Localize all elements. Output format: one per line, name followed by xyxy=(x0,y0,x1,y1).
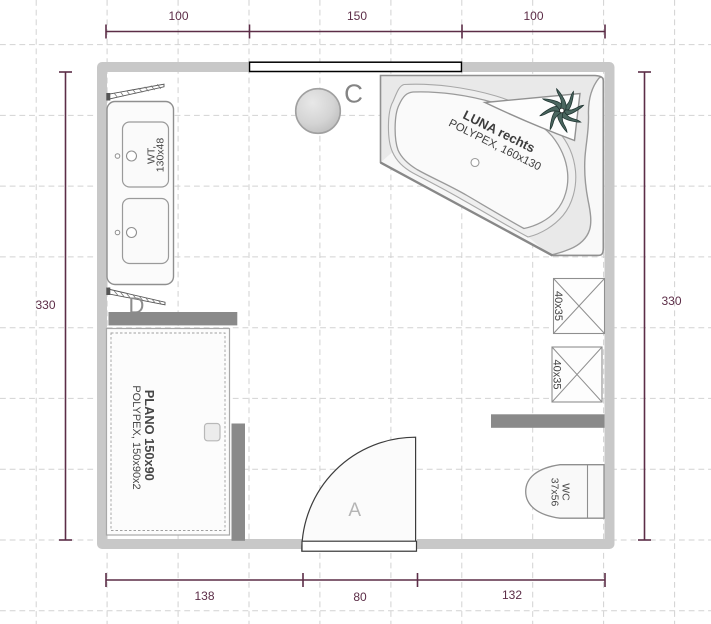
svg-text:138: 138 xyxy=(194,589,214,603)
svg-text:80: 80 xyxy=(353,590,367,604)
svg-text:C: C xyxy=(344,79,363,109)
svg-text:330: 330 xyxy=(35,298,55,312)
svg-text:A: A xyxy=(348,500,361,521)
svg-text:40x35: 40x35 xyxy=(551,360,563,390)
svg-text:40x35: 40x35 xyxy=(552,291,564,321)
svg-text:100: 100 xyxy=(168,9,188,23)
svg-text:100: 100 xyxy=(523,9,543,23)
svg-text:150: 150 xyxy=(347,9,367,23)
svg-text:PLANO 150x90 POLYPEX, 150x90x2: PLANO 150x90 POLYPEX, 150x90x2 xyxy=(130,385,158,489)
svg-text:132: 132 xyxy=(502,588,522,602)
svg-text:330: 330 xyxy=(661,294,681,308)
